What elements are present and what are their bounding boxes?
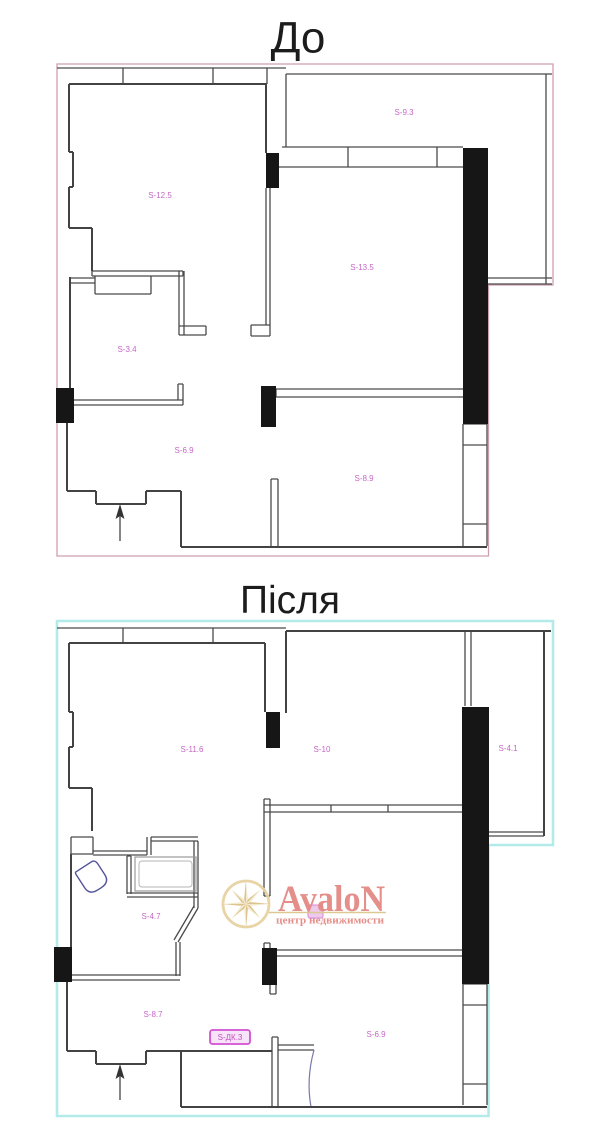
svg-text:S-10: S-10: [314, 745, 331, 754]
svg-text:S-6.9: S-6.9: [366, 1030, 386, 1039]
svg-text:S-9.3: S-9.3: [394, 108, 414, 117]
svg-text:S-4.7: S-4.7: [141, 912, 161, 921]
svg-text:До: До: [271, 14, 326, 63]
svg-text:центр недвижимости: центр недвижимости: [276, 916, 384, 927]
svg-text:S-12.5: S-12.5: [148, 191, 172, 200]
svg-text:S-13.5: S-13.5: [350, 263, 374, 272]
svg-text:S-3.4: S-3.4: [117, 345, 137, 354]
svg-text:S-6.9: S-6.9: [174, 446, 194, 455]
svg-text:S-ДК.3: S-ДК.3: [218, 1033, 243, 1042]
svg-text:AvaloN: AvaloN: [278, 879, 385, 920]
svg-text:Після: Після: [240, 579, 340, 622]
svg-text:S-11.6: S-11.6: [181, 745, 205, 754]
svg-text:S-4.1: S-4.1: [498, 744, 518, 753]
svg-text:S-8.9: S-8.9: [354, 474, 374, 483]
svg-text:S-8.7: S-8.7: [143, 1010, 163, 1019]
